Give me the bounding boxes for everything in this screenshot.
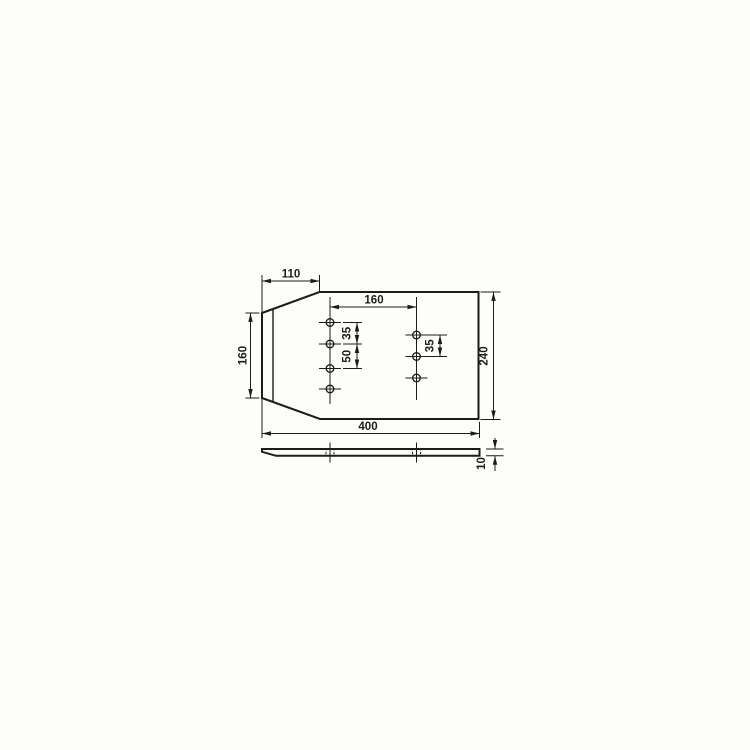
dim-chamfer-length: 110 — [262, 269, 320, 293]
arrowhead-right — [471, 431, 480, 435]
arrowhead-right — [311, 279, 320, 283]
arrowhead-top — [355, 344, 359, 353]
arrowhead-left — [262, 431, 271, 435]
arrowhead-top — [355, 323, 359, 332]
dim-end-height: 160 — [238, 313, 260, 398]
dim-hole-columns-spacing: 160 — [330, 295, 417, 310]
arrowhead-bottom — [438, 348, 442, 357]
dim-plate-length: 400 — [262, 421, 480, 438]
dim-left-pitch-b-label: 50 — [342, 350, 354, 363]
dim-plate-width: 240 — [479, 292, 501, 420]
dim-left-pitch-a-label: 35 — [342, 326, 354, 339]
arrowhead-down — [493, 440, 497, 449]
arrowhead-bottom — [355, 360, 359, 369]
arrowhead-right — [408, 305, 417, 309]
side-profile-outline — [262, 449, 480, 456]
dim-plate-width-label: 240 — [479, 346, 491, 365]
arrowhead-left — [262, 279, 271, 283]
dim-hole-columns-spacing-label: 160 — [364, 295, 383, 307]
dim-plate-thickness-label: 10 — [476, 457, 488, 470]
arrowhead-bottom — [248, 389, 252, 398]
technical-drawing: 110 160 160 35 50 35 — [0, 0, 750, 750]
dim-right-pitch-label: 35 — [425, 339, 437, 352]
dim-left-pitch-a: 35 — [342, 323, 363, 345]
arrowhead-bottom — [491, 411, 495, 420]
dim-plate-length-label: 400 — [358, 421, 377, 433]
arrowhead-top — [438, 335, 442, 344]
arrowhead-bottom — [355, 335, 359, 344]
arrowhead-top — [248, 313, 252, 322]
arrowhead-top — [491, 292, 495, 301]
side-view — [262, 443, 480, 463]
plate-outline — [262, 292, 479, 419]
dim-right-pitch: 35 — [423, 335, 447, 357]
dim-end-height-label: 160 — [238, 346, 250, 365]
arrowhead-up — [493, 456, 497, 465]
arrowhead-left — [330, 305, 339, 309]
dim-left-pitch-b: 50 — [342, 344, 363, 369]
dim-chamfer-length-label: 110 — [282, 269, 301, 281]
